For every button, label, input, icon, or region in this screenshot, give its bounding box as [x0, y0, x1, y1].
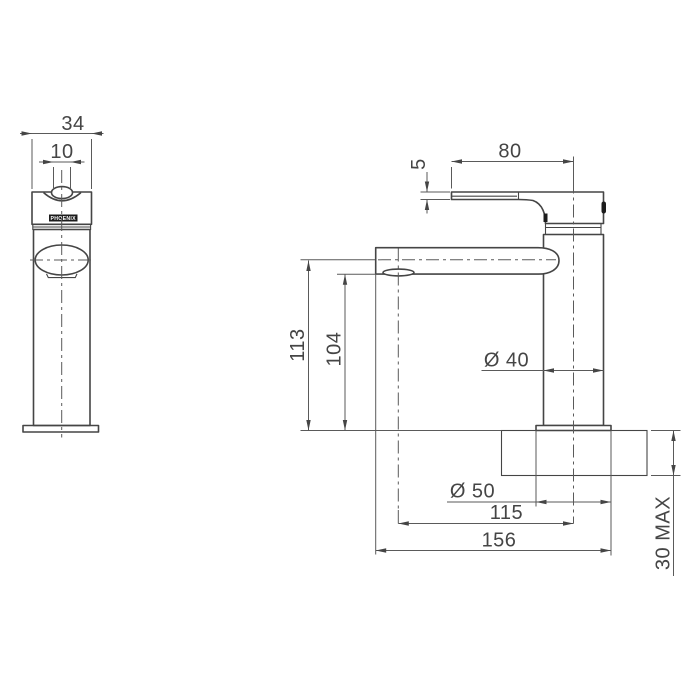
dim-label-34: 34	[61, 113, 84, 135]
dim-outlet-clearance-height: 104	[324, 274, 348, 430]
dim-spout-centre-height: 113	[287, 261, 311, 431]
brand-label-text: PHOENIX	[50, 216, 76, 222]
dim-overall-depth: 156	[376, 530, 611, 553]
dim-label-5: 5	[408, 158, 430, 170]
side-indicator-mark	[544, 214, 548, 223]
brand-label: PHOENIX	[49, 215, 78, 223]
faucet-dimension-drawing: PHOENIX 34 10	[0, 0, 700, 700]
mounting-surface-hatch	[502, 431, 648, 476]
dim-label-156: 156	[482, 530, 517, 552]
dim-label-115: 115	[490, 502, 523, 524]
front-base-flange	[23, 426, 99, 433]
dim-deck-thickness: 30 MAX	[653, 431, 676, 577]
dim-label-113: 113	[287, 328, 309, 361]
dim-label-104: 104	[324, 332, 346, 367]
dim-handle-length: 80	[452, 141, 574, 190]
dim-label-80: 80	[498, 141, 521, 163]
front-view: PHOENIX 34 10	[20, 113, 104, 438]
dim-handle-thickness: 5	[408, 158, 450, 213]
technical-drawing-page: PHOENIX 34 10	[0, 0, 700, 700]
dim-body-diameter: Ø 40	[482, 350, 604, 373]
dim-spout-reach: 115	[398, 502, 573, 526]
side-view: 80 5 113 104	[287, 141, 681, 577]
dim-base-diameter: Ø 50	[447, 481, 611, 505]
dim-label-30max: 30 MAX	[653, 496, 675, 570]
side-button-mark	[602, 202, 607, 214]
dim-label-10: 10	[50, 141, 73, 163]
dim-label-d40: Ø 40	[484, 350, 529, 372]
dim-label-d50: Ø 50	[450, 481, 495, 503]
